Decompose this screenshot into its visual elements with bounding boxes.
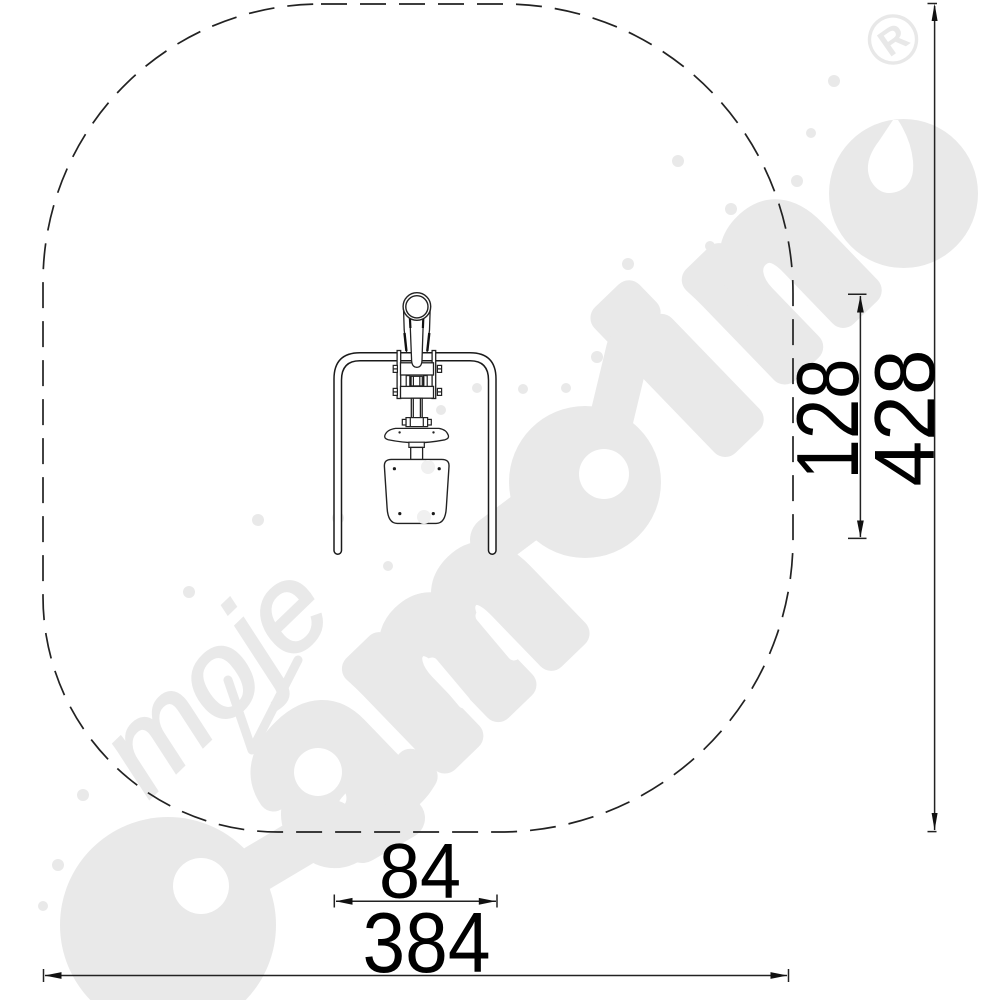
svg-text:384: 384 <box>363 896 491 991</box>
svg-text:128: 128 <box>778 359 877 480</box>
